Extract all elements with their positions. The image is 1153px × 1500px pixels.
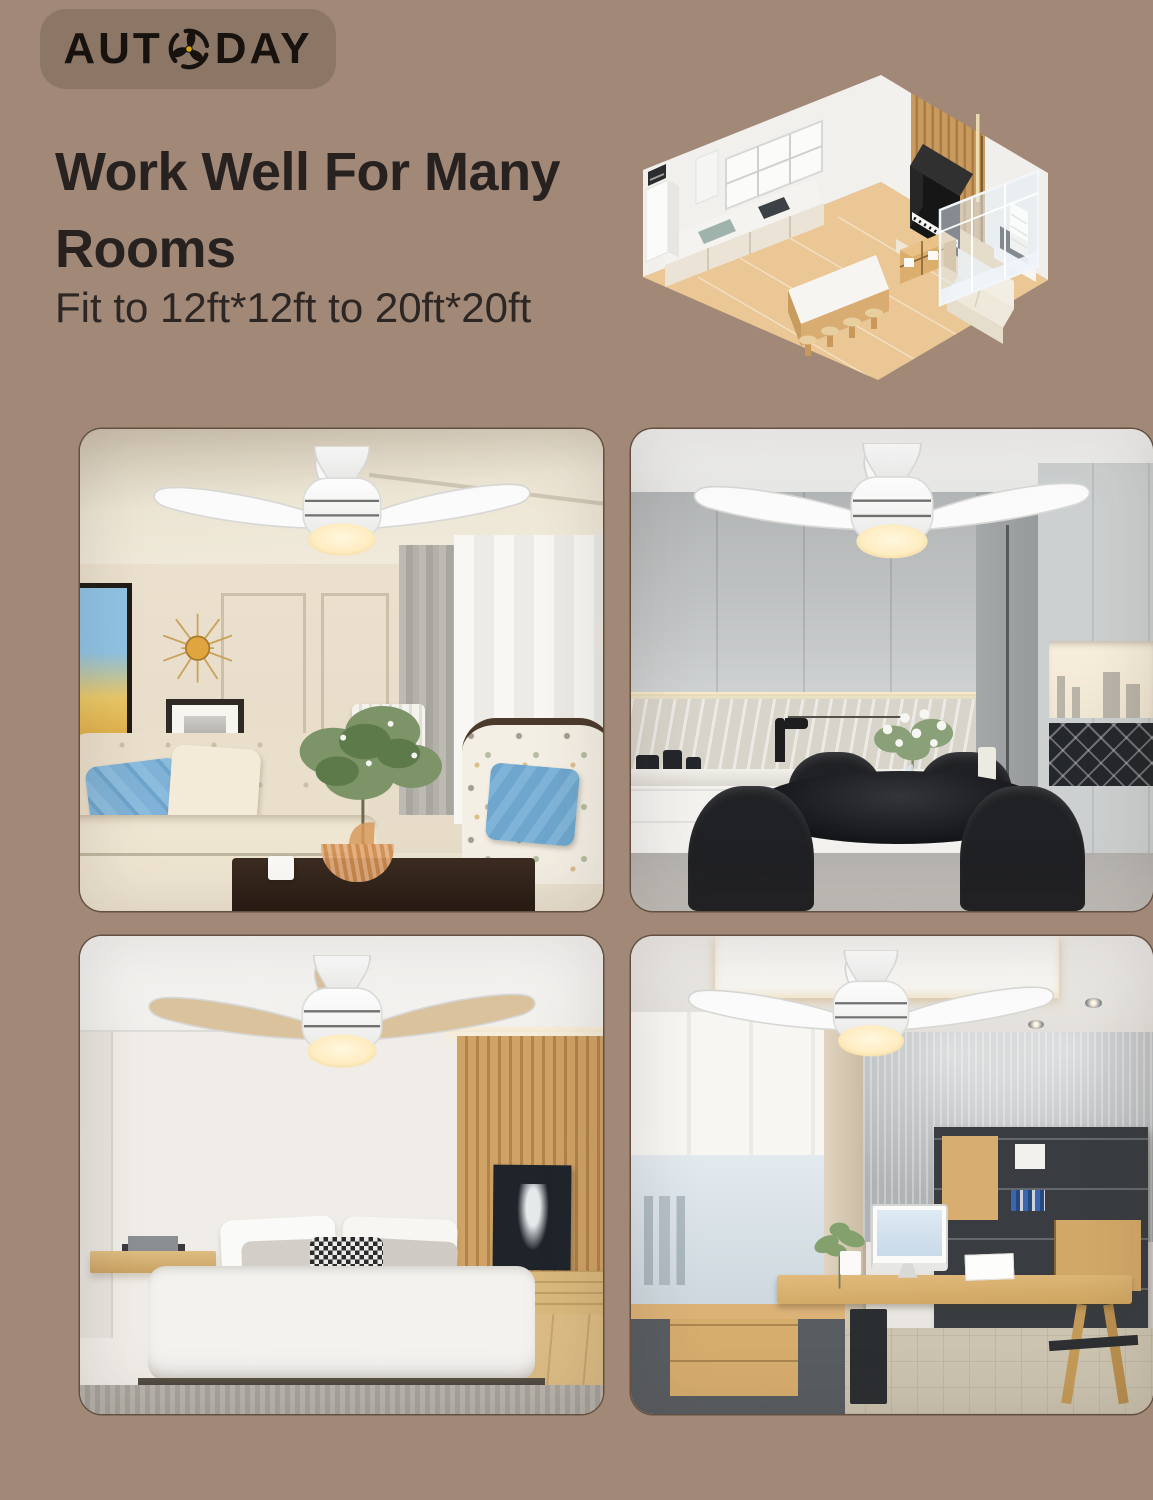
left-wall <box>80 1032 113 1338</box>
wine-rack <box>1049 723 1153 786</box>
pc-tower <box>850 1309 887 1405</box>
title-line-2: Rooms <box>55 219 236 279</box>
white-mug <box>268 856 294 880</box>
photo-bedroom <box>80 936 603 1414</box>
bookshelf-unit <box>934 1127 1148 1337</box>
photo-home-office <box>631 936 1153 1414</box>
potted-plant <box>274 670 452 872</box>
brand-text-right: DAY <box>215 24 313 74</box>
jar <box>1126 684 1141 719</box>
small-plant-pot <box>840 1251 861 1275</box>
brand-text-left: AUT <box>63 24 162 74</box>
city-silhouette <box>639 1196 689 1285</box>
credenza-top <box>631 1304 845 1319</box>
lighted-niche <box>1049 641 1153 718</box>
gray-rug <box>80 1385 603 1414</box>
laptop-paper <box>965 1253 1015 1281</box>
credenza-drawers <box>670 1319 798 1396</box>
pot <box>663 750 682 769</box>
kettle <box>1103 672 1120 718</box>
white-duvet <box>148 1266 535 1381</box>
wood-cabinet <box>942 1136 998 1220</box>
product-infographic-page: AUT DAY Work Well For Many Rooms Fit to … <box>0 0 1153 1500</box>
black-framed-art <box>493 1165 572 1271</box>
imac-screen <box>877 1210 941 1256</box>
book-stack <box>122 1230 185 1252</box>
side-credenza <box>631 1304 845 1414</box>
bottle <box>1072 687 1080 718</box>
imac-computer <box>871 1204 948 1271</box>
pot <box>686 757 701 769</box>
milk-bottle <box>978 747 996 781</box>
isometric-room-svg <box>638 52 1110 388</box>
cooktop-pots <box>636 750 704 769</box>
bottle <box>1057 676 1065 718</box>
pot <box>636 755 659 768</box>
books <box>1011 1190 1045 1211</box>
blue-pillow <box>485 763 580 848</box>
title-line-1: Work Well For Many <box>55 142 560 202</box>
dining-chair <box>960 786 1085 911</box>
fan-logo-icon <box>166 26 212 72</box>
brand-logo-badge: AUT DAY <box>40 9 336 89</box>
art-figure <box>516 1184 550 1252</box>
page-title: Work Well For Many Rooms <box>55 134 560 288</box>
sunburst-mirror <box>161 612 234 684</box>
photo-kitchen-dining <box>631 429 1153 911</box>
book <box>128 1236 178 1251</box>
black-faucet <box>775 718 785 761</box>
photo-living-room <box>80 429 603 911</box>
isometric-room-illustration <box>638 52 1110 388</box>
page-subtitle: Fit to 12ft*12ft to 20ft*20ft <box>55 284 531 332</box>
recessed-light <box>1085 998 1102 1008</box>
desk-plant <box>803 1204 876 1290</box>
dining-chair <box>688 786 813 911</box>
white-box <box>1015 1144 1045 1169</box>
